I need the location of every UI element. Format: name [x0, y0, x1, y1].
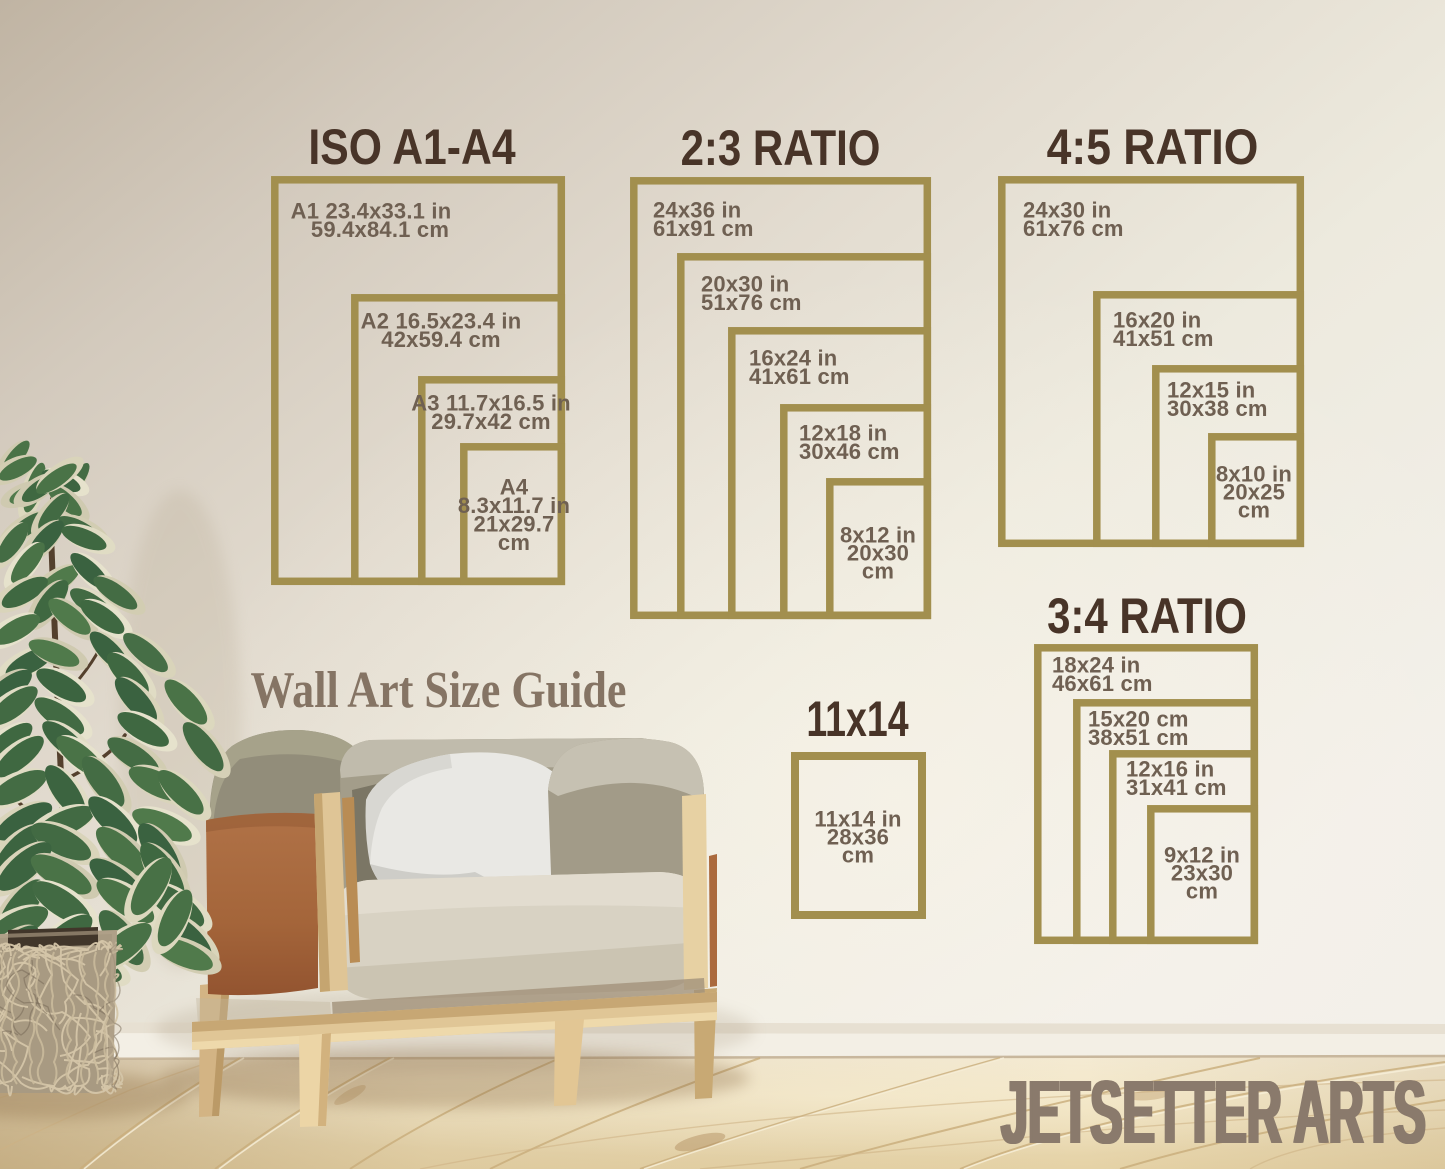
svg-text:30x38 cm: 30x38 cm	[1167, 396, 1268, 421]
svg-text:11x14: 11x14	[806, 692, 909, 747]
svg-text:29.7x42 cm: 29.7x42 cm	[431, 409, 550, 434]
svg-text:cm: cm	[842, 843, 874, 868]
svg-text:ISO A1-A4: ISO A1-A4	[308, 119, 515, 175]
svg-text:cm: cm	[1238, 498, 1270, 523]
svg-text:2:3 RATIO: 2:3 RATIO	[681, 120, 881, 176]
svg-text:46x61 cm: 46x61 cm	[1052, 671, 1153, 696]
svg-text:61x91 cm: 61x91 cm	[653, 216, 754, 241]
svg-text:JETSETTER ARTS: JETSETTER ARTS	[1003, 1063, 1428, 1163]
svg-text:41x51 cm: 41x51 cm	[1113, 326, 1214, 351]
svg-text:38x51 cm: 38x51 cm	[1088, 725, 1189, 750]
svg-text:cm: cm	[498, 530, 530, 555]
svg-text:61x76 cm: 61x76 cm	[1023, 216, 1124, 241]
svg-text:51x76 cm: 51x76 cm	[701, 290, 802, 315]
svg-text:41x61 cm: 41x61 cm	[749, 364, 850, 389]
svg-text:cm: cm	[862, 559, 894, 584]
svg-text:42x59.4 cm: 42x59.4 cm	[381, 327, 500, 352]
svg-text:4:5 RATIO: 4:5 RATIO	[1047, 120, 1259, 176]
svg-text:59.4x84.1 cm: 59.4x84.1 cm	[311, 217, 449, 242]
svg-text:30x46 cm: 30x46 cm	[799, 439, 900, 464]
svg-text:31x41 cm: 31x41 cm	[1126, 775, 1227, 800]
svg-text:3:4 RATIO: 3:4 RATIO	[1047, 588, 1247, 644]
svg-text:Wall Art Size Guide: Wall Art Size Guide	[251, 662, 627, 719]
svg-text:cm: cm	[1186, 879, 1218, 904]
